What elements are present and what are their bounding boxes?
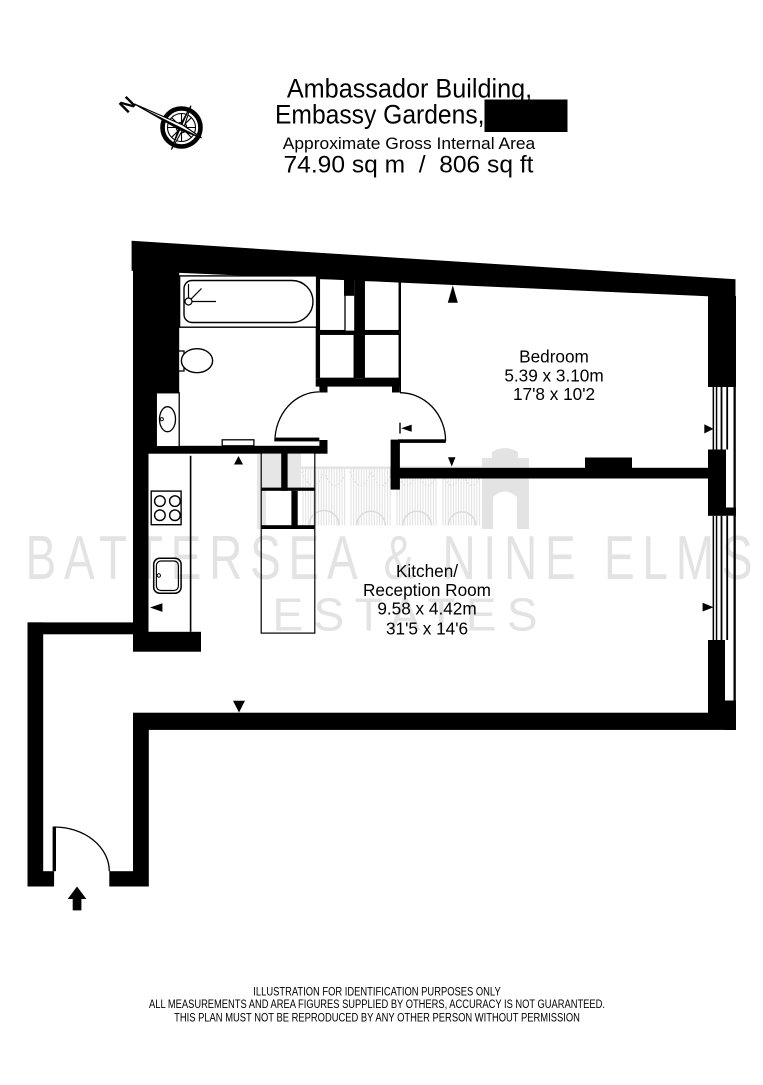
svg-text:Bedroom: Bedroom	[519, 346, 589, 366]
svg-text:Approximate Gross Internal Are: Approximate Gross Internal Area	[283, 134, 536, 153]
svg-text:THIS PLAN MUST NOT BE REPRODUC: THIS PLAN MUST NOT BE REPRODUCED BY ANY …	[174, 1010, 580, 1024]
svg-text:74.90 sq m / 806 sq ft: 74.90 sq m / 806 sq ft	[284, 152, 534, 179]
svg-text:5.39 x 3.10m: 5.39 x 3.10m	[504, 365, 603, 385]
svg-text:BATTERSEA & NINE ELMS: BATTERSEA & NINE ELMS	[25, 522, 752, 593]
svg-text:Embassy Gardens,: Embassy Gardens,	[275, 100, 485, 130]
svg-text:17'8 x 10'2: 17'8 x 10'2	[513, 384, 595, 404]
svg-text:ALL MEASUREMENTS AND AREA FIGU: ALL MEASUREMENTS AND AREA FIGURES SUPPLI…	[149, 997, 605, 1011]
